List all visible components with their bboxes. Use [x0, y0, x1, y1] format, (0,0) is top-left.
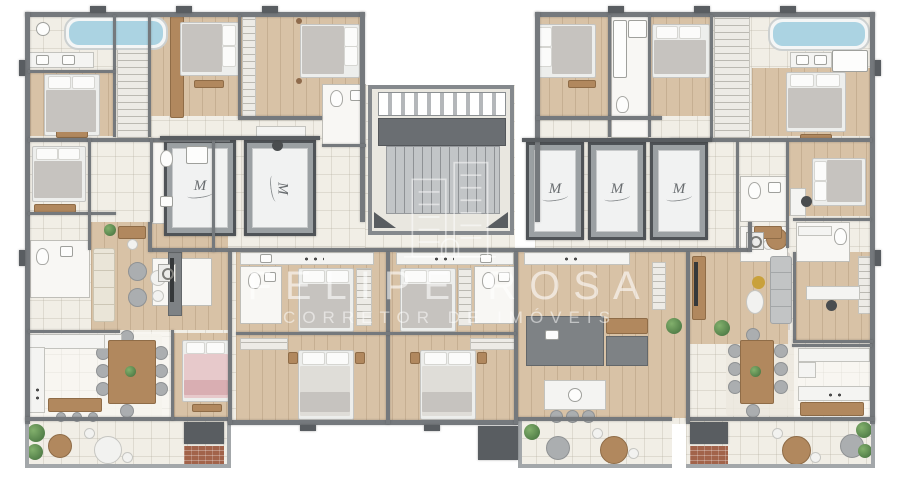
- wall: [514, 252, 518, 424]
- sink: [60, 246, 73, 257]
- kitchen-counter: [798, 348, 870, 362]
- sofa: [93, 248, 115, 322]
- wardrobe: [458, 268, 472, 326]
- pillow: [344, 46, 358, 66]
- washer-door: [162, 268, 174, 280]
- balcony-table: [600, 436, 628, 464]
- elevator-label: M: [673, 181, 686, 197]
- closet: [240, 338, 288, 350]
- pillow: [326, 270, 349, 283]
- pillow: [344, 27, 358, 47]
- wall: [212, 138, 215, 252]
- blanket: [34, 161, 82, 198]
- pillow: [302, 352, 325, 365]
- wardrobe: [242, 16, 256, 118]
- plant-icon: [27, 424, 45, 442]
- bench: [192, 404, 222, 412]
- dining-chair: [154, 346, 168, 360]
- shower-head: [36, 22, 50, 36]
- wall: [236, 332, 516, 335]
- centerpiece-plant-icon: [125, 366, 136, 377]
- elevator-label: M: [194, 178, 207, 194]
- dining-chair: [774, 344, 788, 358]
- nightstand: [288, 352, 298, 364]
- console-table: [118, 226, 146, 239]
- wall: [28, 330, 120, 333]
- pillow: [814, 181, 827, 201]
- wall: [238, 116, 322, 120]
- pillow: [814, 161, 827, 181]
- pillow: [790, 74, 814, 87]
- plant-icon: [858, 444, 872, 458]
- toilet: [834, 228, 847, 245]
- blanket: [402, 284, 452, 328]
- pillow: [72, 76, 95, 89]
- sink: [796, 55, 809, 65]
- pillow: [404, 270, 427, 283]
- blanket: [654, 40, 706, 74]
- toilet: [160, 150, 173, 167]
- blanket: [182, 24, 222, 72]
- balcony-rail: [686, 464, 875, 468]
- elevator-label: M: [549, 181, 562, 197]
- sink: [768, 182, 781, 193]
- blanket: [302, 26, 344, 74]
- pillow: [656, 26, 678, 39]
- balcony-rail: [25, 420, 29, 468]
- pillow: [448, 352, 471, 365]
- sink: [264, 272, 276, 282]
- centerpiece-plant-icon: [750, 366, 761, 377]
- pillow: [222, 25, 236, 46]
- shower: [628, 20, 647, 38]
- pillow: [538, 47, 552, 67]
- armchair: [128, 288, 147, 307]
- pillow: [424, 352, 447, 365]
- dining-chair: [154, 364, 168, 378]
- wall: [522, 138, 712, 142]
- dining-chair: [120, 404, 134, 418]
- toilet: [36, 248, 49, 265]
- column: [780, 6, 796, 13]
- vanity: [798, 226, 832, 236]
- plant-icon: [524, 424, 540, 440]
- balcony-rail: [25, 464, 231, 468]
- blanket: [552, 26, 592, 74]
- bench: [568, 80, 596, 88]
- shower: [832, 50, 868, 72]
- barbecue-grill: [184, 446, 224, 466]
- console-table: [606, 318, 648, 334]
- elevator-brand-logo: M: [271, 175, 290, 201]
- service-box: [478, 426, 518, 460]
- blanket: [827, 160, 862, 202]
- kitchen-bar: [800, 402, 864, 416]
- balcony-rail: [518, 464, 672, 468]
- toilet: [330, 90, 343, 107]
- wall: [536, 116, 662, 120]
- elevator-label: M: [275, 182, 291, 195]
- vanity: [613, 20, 627, 78]
- wall: [793, 252, 796, 342]
- pillow: [816, 74, 840, 87]
- plant-icon: [666, 318, 682, 334]
- bathtub: [64, 16, 168, 50]
- wardrobe: [652, 262, 666, 310]
- shower: [186, 146, 208, 164]
- wall: [160, 136, 320, 140]
- plant-icon: [714, 320, 730, 336]
- wall: [113, 15, 116, 137]
- elevator-brand-logo: M: [542, 182, 568, 201]
- column: [262, 6, 278, 13]
- pillow: [538, 27, 552, 47]
- wall: [793, 218, 871, 221]
- kitchen-cabinets: [526, 316, 604, 366]
- sink: [568, 388, 582, 402]
- pillow: [186, 342, 205, 354]
- toilet: [616, 96, 629, 113]
- balcony-table: [782, 436, 811, 465]
- dining-chair: [746, 404, 760, 418]
- wall: [322, 144, 366, 147]
- column: [90, 6, 106, 13]
- elevator-4: M: [588, 142, 646, 240]
- side-table: [746, 290, 764, 314]
- column: [176, 6, 192, 13]
- blanket: [300, 284, 350, 328]
- sink: [36, 55, 49, 65]
- wall: [786, 142, 789, 248]
- pillow: [36, 148, 58, 160]
- plant-icon: [104, 224, 116, 236]
- bathtub: [768, 17, 870, 51]
- elevator-5: M: [650, 142, 708, 240]
- tv: [694, 262, 698, 306]
- bathtub-water: [773, 22, 865, 46]
- dining-chair: [774, 380, 788, 394]
- dining-chair: [774, 362, 788, 376]
- pillow: [326, 352, 349, 365]
- grill-hood: [184, 422, 224, 444]
- toilet: [482, 272, 495, 289]
- wall: [228, 252, 232, 424]
- kitchen-counter: [396, 252, 514, 265]
- elevator-brand-logo: M: [604, 182, 630, 201]
- dining-chair: [154, 382, 168, 396]
- balcony-table: [94, 436, 122, 464]
- bed-throw: [422, 392, 472, 412]
- side-table: [152, 290, 164, 302]
- column: [19, 250, 25, 266]
- stove: [300, 253, 324, 262]
- sink: [62, 55, 75, 65]
- corridor-wall: [150, 248, 750, 252]
- balcony-chair: [628, 448, 639, 459]
- elevator-cab: M: [252, 148, 308, 228]
- elevator-brand-logo: M: [187, 179, 213, 198]
- toilet: [748, 182, 761, 199]
- wall: [748, 222, 752, 252]
- pillow: [302, 270, 325, 283]
- wall: [171, 330, 174, 420]
- column: [608, 6, 624, 13]
- wall: [360, 12, 365, 222]
- desk-chair: [272, 140, 283, 151]
- stove: [430, 253, 454, 262]
- balcony-rail: [227, 420, 231, 468]
- sofa: [770, 256, 792, 324]
- sink: [160, 196, 173, 207]
- balcony-center-floor: [518, 420, 672, 468]
- balcony-chair: [772, 428, 783, 439]
- wall: [686, 252, 690, 424]
- pillow: [222, 46, 236, 67]
- wall: [88, 138, 91, 250]
- fridge: [798, 362, 816, 378]
- lamp: [296, 78, 302, 84]
- sink: [814, 55, 827, 65]
- elevator-label: M: [611, 181, 624, 197]
- bench: [194, 80, 224, 88]
- column: [19, 60, 25, 76]
- mailboxes: [378, 92, 506, 116]
- blanket: [788, 88, 842, 128]
- wall: [710, 15, 713, 140]
- pillow: [679, 26, 701, 39]
- stool: [127, 239, 138, 250]
- bed-throw: [184, 380, 228, 395]
- column: [424, 425, 440, 431]
- stair-landing-upper: [378, 118, 506, 146]
- column: [300, 425, 316, 431]
- sink: [260, 254, 272, 263]
- pillow: [58, 148, 80, 160]
- wall: [793, 340, 873, 343]
- elevator-brand-logo: M: [666, 182, 692, 201]
- balcony-chair: [810, 452, 821, 463]
- wall: [25, 12, 30, 424]
- wall: [148, 15, 151, 137]
- sink: [480, 254, 492, 263]
- elevator-cab: M: [658, 150, 700, 232]
- barbecue-grill: [690, 446, 728, 466]
- wall: [686, 417, 875, 421]
- stairs: [386, 146, 500, 214]
- wall: [25, 417, 231, 421]
- wall: [25, 12, 365, 17]
- balcony-chair: [122, 452, 133, 463]
- toilet: [248, 272, 261, 289]
- wall: [28, 212, 116, 215]
- tv: [170, 258, 174, 302]
- lamp: [296, 18, 302, 24]
- plant-icon: [856, 422, 872, 438]
- wall: [736, 142, 739, 248]
- wall: [28, 70, 116, 73]
- blanket: [46, 90, 96, 132]
- column: [875, 60, 881, 76]
- bed-throw: [300, 392, 350, 412]
- balcony-rail: [871, 420, 875, 468]
- pillow: [206, 342, 225, 354]
- balcony-rail: [518, 420, 522, 468]
- nightstand: [477, 352, 487, 364]
- kitchen-island: [48, 398, 102, 412]
- armchair: [128, 262, 147, 281]
- elevator-cab: M: [534, 150, 576, 232]
- nightstand: [355, 352, 365, 364]
- column: [694, 6, 710, 13]
- lounge-chair: [546, 436, 570, 460]
- sink: [498, 272, 510, 282]
- stove: [824, 389, 844, 397]
- plant-icon: [27, 444, 43, 460]
- pillow: [48, 76, 71, 89]
- balcony-chair: [84, 428, 95, 439]
- stove: [560, 253, 582, 262]
- column: [875, 250, 881, 266]
- wall: [792, 344, 872, 347]
- wall: [228, 420, 518, 425]
- balcony-chair: [592, 428, 603, 439]
- stove: [31, 384, 42, 402]
- elevator-cab: M: [596, 150, 638, 232]
- wall: [148, 222, 152, 252]
- cabinet: [606, 336, 648, 366]
- nightstand: [410, 352, 420, 364]
- sink: [545, 330, 559, 340]
- wall: [238, 15, 241, 118]
- desk-chair: [801, 196, 812, 207]
- elevator-2: M: [244, 140, 316, 236]
- lounge-chair: [48, 434, 72, 458]
- wall: [386, 252, 390, 424]
- kitchen-counter: [28, 347, 45, 413]
- closet: [470, 338, 516, 350]
- wall: [150, 138, 153, 222]
- coffee-table: [752, 276, 765, 289]
- pillow: [428, 270, 451, 283]
- desk-chair: [826, 300, 837, 311]
- walk-in-closet: [714, 16, 750, 138]
- wall: [518, 417, 672, 421]
- desk: [806, 286, 860, 300]
- grill-hood: [690, 422, 728, 444]
- floor-plan: M M M M M: [0, 0, 900, 486]
- wardrobe: [356, 268, 372, 326]
